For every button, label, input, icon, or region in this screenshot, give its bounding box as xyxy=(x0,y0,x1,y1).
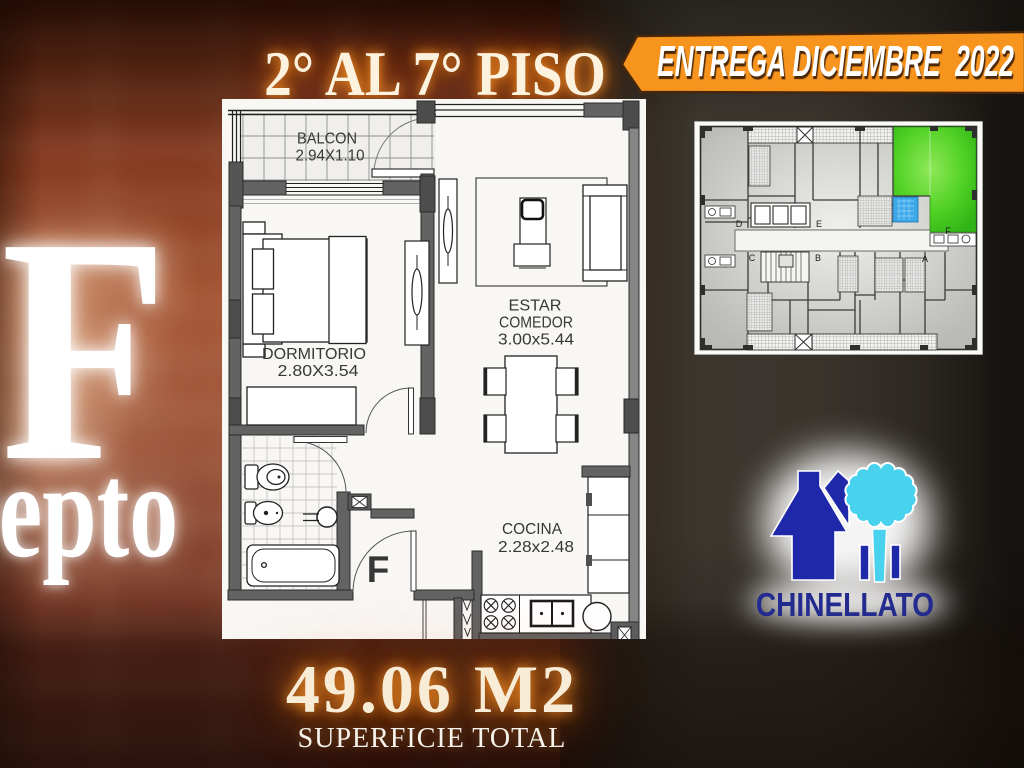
svg-text:F: F xyxy=(945,226,951,236)
svg-text:E: E xyxy=(816,219,822,229)
svg-text:COCINA: COCINA xyxy=(502,521,563,538)
svg-text:2.28x2.48: 2.28x2.48 xyxy=(498,539,574,556)
svg-text:3.00x5.44: 3.00x5.44 xyxy=(498,332,574,349)
svg-text:COMEDOR: COMEDOR xyxy=(499,315,573,332)
svg-text:B: B xyxy=(815,253,821,263)
svg-text:A: A xyxy=(922,254,928,264)
svg-text:F: F xyxy=(367,549,390,590)
svg-text:2.80X3.54: 2.80X3.54 xyxy=(278,363,359,380)
svg-text:BALCON: BALCON xyxy=(297,131,357,148)
svg-text:D: D xyxy=(736,219,743,229)
svg-text:2.94X1.10: 2.94X1.10 xyxy=(296,148,365,165)
svg-text:ESTAR: ESTAR xyxy=(509,298,562,315)
svg-text:C: C xyxy=(749,253,756,263)
svg-text:DORMITORIO: DORMITORIO xyxy=(262,346,366,363)
